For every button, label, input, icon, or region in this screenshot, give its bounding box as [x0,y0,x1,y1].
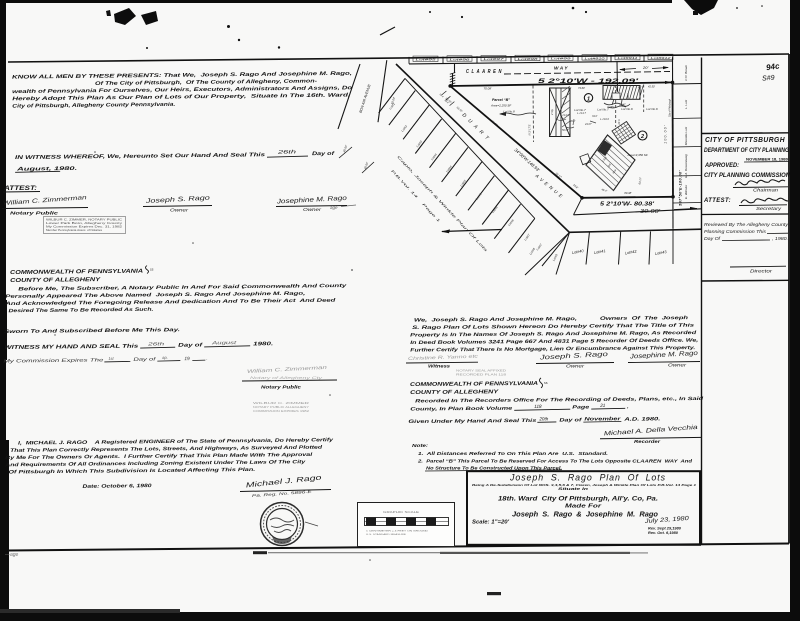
svg-text:Director: Director [750,269,773,275]
svg-text:,: , [626,405,628,410]
svg-text:50.07': 50.07' [562,129,569,132]
svg-text:Chairman: Chairman [753,188,779,193]
svg-text:County, In Plan Book Volume: County, In Plan Book Volume [410,406,513,413]
svg-text:Notary of Allegheny Cty: Notary of Allegheny Cty [250,375,324,380]
svg-text:City of Pittsburgh: City of Pittsburgh [668,98,671,117]
svg-text:—age: —age [4,552,19,558]
svg-text:RECORDED PLAN 118: RECORDED PLAN 118 [456,373,507,377]
svg-text:Reviewed By The Allegheny Coun: Reviewed By The Allegheny County [704,222,789,228]
svg-text:WILBUR C. ZIMMER: WILBUR C. ZIMMER [253,401,309,405]
svg-text:COMMONWEALTH OF PENNSYLVANIA: COMMONWEALTH OF PENNSYLVANIA [410,381,538,388]
svg-text:C.H. Brown: C.H. Brown [684,65,688,81]
svg-text:E.A. Rosenzweig: E.A. Rosenzweig [684,154,688,178]
svg-text:ss: ss [150,267,154,271]
svg-text:My Commission Expires The: My Commission Expires The [3,357,104,364]
svg-text:Lot#912: Lot#912 [651,56,672,60]
svg-text:Lot No.6: Lot No.6 [646,107,658,111]
svg-text:ap.: ap. [162,355,168,360]
svg-text:2. Parcel “B” This Parcel To: 2. Parcel “B” This Parcel To Be Reserved… [417,458,693,463]
svg-text:Joseph S. Rago & Josephine: Joseph S. Rago & Josephine M. Rago [512,512,659,519]
svg-text:Marcella Lutz: Marcella Lutz [684,126,688,145]
svg-text:42.50': 42.50' [648,85,655,89]
svg-text:2 Sty: 2 Sty [550,108,554,116]
svg-text:Scale: 1”=20': Scale: 1”=20' [472,520,510,526]
svg-text:1. All Distances Referred To: 1. All Distances Referred To On This Pla… [418,451,608,456]
svg-text:Lot#911: Lot#911 [618,56,639,60]
svg-text:Secretary: Secretary [756,206,782,211]
svg-text:COUNTY OF ALLEGHENY: COUNTY OF ALLEGHENY [10,277,102,284]
svg-text:100.00': 100.00' [664,124,668,143]
svg-text:Witness: Witness [428,364,451,369]
svg-text:GRAPHIC SCALE: GRAPHIC SCALE [383,510,419,514]
svg-text:Notary Public: Notary Public [10,211,59,216]
svg-text:Date: October 6, 1980: Date: October 6, 1980 [82,483,151,490]
svg-text:18th. Ward City Of Pittsburgh: 18th. Ward City Of Pittsburgh, All'y. Co… [498,496,658,503]
svg-text:L.J.14.7: L.J.14.7 [577,112,587,115]
svg-text:Lot No.6: Lot No.6 [621,107,633,111]
svg-text:L.J.14.6: L.J.14.6 [560,114,570,117]
svg-text:NOTARY SEAL AFFIXED: NOTARY SEAL AFFIXED [456,369,506,373]
svg-text:APPROVED:: APPROVED: [704,163,739,169]
svg-text:Lot#97: Lot#97 [484,57,505,61]
svg-text:118: 118 [534,404,542,409]
svg-text:.: . [206,357,207,362]
svg-text:Owner: Owner [170,208,189,213]
svg-text:Member Pennsylvania Assoc. of: Member Pennsylvania Assoc. of Notaries [46,229,103,232]
svg-text:ss.: ss. [544,381,548,385]
svg-text:26.0': 26.0' [569,120,576,123]
svg-text:Planning Commission This: Planning Commission This [704,229,767,235]
svg-text:Day of: Day of [133,357,156,363]
svg-text:Day Of: Day Of [704,236,721,242]
svg-text:Lot#96: Lot#96 [450,57,471,61]
svg-text:Recorder: Recorder [634,439,661,444]
svg-text:L.J.16.6: L.J.16.6 [600,118,610,121]
svg-text:21: 21 [599,403,606,408]
svg-text:Area=3,350 SF: Area=3,350 SF [627,153,648,157]
svg-text:Page: Page [572,404,590,410]
svg-text:Lot#99: Lot#99 [551,57,572,61]
svg-text:NOTARY PUBLIC ALLEGHENY: NOTARY PUBLIC ALLEGHENY [253,405,309,409]
svg-text:587°50'E-100.00': 587°50'E-100.00' [679,170,683,206]
svg-text:Notary Public: Notary Public [261,385,302,390]
svg-text:Owner: Owner [566,364,585,369]
svg-text:26th: 26th [276,149,296,155]
svg-text:74.60': 74.60' [578,86,585,90]
svg-text:, 1980.: , 1980. [772,236,788,241]
svg-text:U.S. STANDARD MEASURE: U.S. STANDARD MEASURE [366,533,407,536]
svg-text:Rev. Oct. 6,1980: Rev. Oct. 6,1980 [648,531,678,535]
svg-text:20'-0: 20'-0 [618,119,621,126]
svg-text:CITY OF PITTSBURGH: CITY OF PITTSBURGH [705,135,785,144]
svg-text:2: 2 [640,134,644,140]
svg-text:N 3°17'E: N 3°17'E [528,124,532,135]
svg-text:19: 19 [184,356,190,362]
svg-text:24.07': 24.07' [584,123,592,126]
svg-text:DEPARTMENT OF CITY PLANNING: DEPARTMENT OF CITY PLANNING [704,148,789,154]
svg-text:20th: 20th [538,416,548,421]
svg-text:Owner: Owner [668,363,687,368]
svg-text:ATTEST:: ATTEST: [703,197,731,204]
svg-text:S#9: S#9 [762,75,775,83]
svg-text:Day of: Day of [178,342,204,348]
svg-text:WAY: WAY [554,66,569,71]
svg-text:E. Winsler: E. Winsler [684,184,688,199]
svg-text:Lot#95: Lot#95 [416,58,437,62]
svg-text:August: August [210,340,237,345]
svg-text:COUNTY OF ALLEGHENY: COUNTY OF ALLEGHENY [410,389,499,396]
svg-text:Lot#98: Lot#98 [518,57,539,61]
svg-text:Given Under My Hand And Seal T: Given Under My Hand And Seal This [408,418,536,425]
svg-text:1 CENTIMETER = 4 FEET ON GROUN: 1 CENTIMETER = 4 FEET ON GROUND [366,531,429,533]
svg-text:L. Lutz: L. Lutz [684,99,688,109]
svg-text:CITY PLANNING COMMISSION: CITY PLANNING COMMISSION [704,173,791,179]
svg-text:1980.: 1980. [253,341,273,347]
svg-text:Owner: Owner [303,207,322,212]
svg-text:80.38': 80.38' [624,191,632,195]
svg-text:Note:: Note: [412,443,429,448]
svg-text:Parcel “B”: Parcel “B” [492,98,510,102]
svg-text:Made For: Made For [565,504,603,510]
svg-text:1st: 1st [108,356,114,361]
svg-text:Area=2,250 SF: Area=2,250 SF [490,104,511,108]
svg-text:Situate In: Situate In [558,486,589,491]
svg-text:CLAAREN: CLAAREN [466,69,504,75]
svg-text:Day of: Day of [559,417,583,423]
svg-text:Lot#6u: Lot#6u [607,105,615,109]
svg-text:1: 1 [587,96,590,102]
svg-text:20': 20' [642,65,648,70]
svg-text:5 2°10'W- 80.38': 5 2°10'W- 80.38' [600,202,655,208]
svg-text:NOVEMBER 18, 1980: NOVEMBER 18, 1980 [746,158,788,162]
svg-text:34.0': 34.0' [592,115,598,118]
svg-text:Day of: Day of [312,151,336,157]
svg-text:ATTEST:: ATTEST: [3,186,37,192]
svg-text:94c: 94c [766,61,781,72]
svg-text:A.D. 1980.: A.D. 1980. [623,416,661,422]
svg-text:COMMISSION EXPIRES 1982: COMMISSION EXPIRES 1982 [253,409,310,413]
svg-text:26th: 26th [146,341,165,346]
svg-text:70.08': 70.08' [484,86,493,90]
svg-text:Lot#7: Lot#7 [619,103,626,107]
svg-text:Lot#910: Lot#910 [585,56,606,60]
